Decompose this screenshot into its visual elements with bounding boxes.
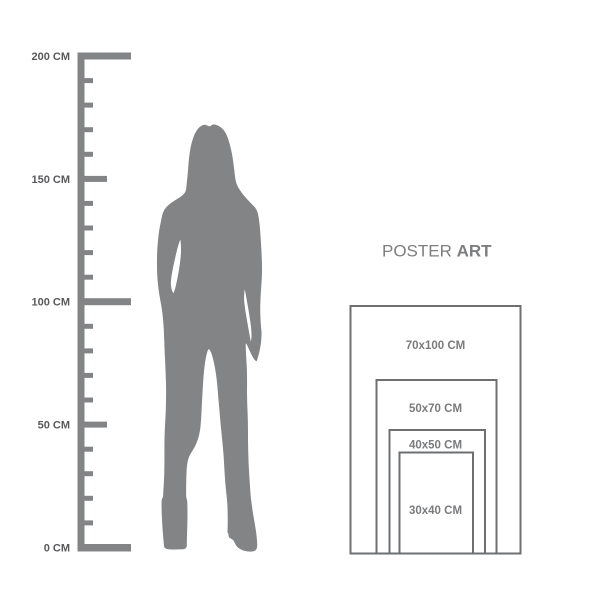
svg-text:40x50 CM: 40x50 CM (409, 440, 462, 452)
svg-text:200 CM: 200 CM (31, 51, 70, 63)
svg-text:0 CM: 0 CM (44, 543, 70, 555)
svg-text:100 CM: 100 CM (31, 297, 70, 309)
svg-text:50 CM: 50 CM (38, 420, 70, 432)
svg-text:70x100 CM: 70x100 CM (406, 340, 465, 352)
svg-text:30x40 CM: 30x40 CM (409, 505, 462, 517)
svg-text:POSTER ART: POSTER ART (382, 242, 492, 261)
svg-text:150 CM: 150 CM (31, 174, 70, 186)
svg-text:50x70 CM: 50x70 CM (409, 403, 462, 415)
